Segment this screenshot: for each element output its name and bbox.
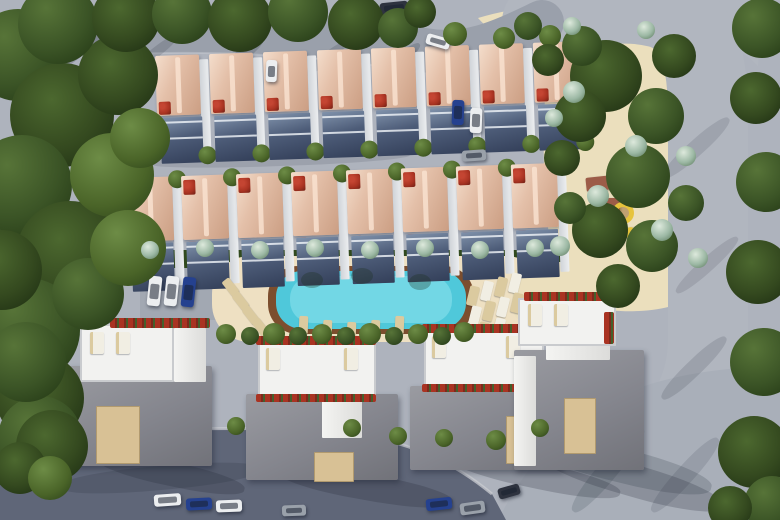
roof-ridge	[283, 54, 290, 109]
tree	[227, 417, 245, 435]
roof-ridge	[477, 168, 485, 227]
ornamental-tree	[526, 239, 544, 257]
parked-car	[462, 149, 487, 162]
terrace-rail	[323, 131, 365, 134]
car-windshield	[166, 283, 177, 299]
tree	[216, 324, 236, 344]
flower-planter	[213, 100, 225, 113]
flower-planter	[110, 318, 210, 328]
sun-lounger	[266, 348, 280, 370]
sun-lounger	[528, 304, 542, 326]
roof-ridge	[532, 166, 540, 225]
villa-deck	[314, 452, 354, 482]
tree	[433, 327, 451, 345]
palm-shadow	[351, 268, 373, 284]
tree	[486, 430, 506, 450]
car-windshield	[430, 500, 449, 508]
terrace-rail	[485, 125, 527, 128]
tree	[596, 264, 640, 308]
car-windshield	[472, 114, 481, 127]
terrace-rail	[376, 113, 418, 116]
flower-planter	[374, 94, 386, 107]
parked-car	[452, 100, 465, 125]
parked-car	[154, 493, 182, 507]
ornamental-tree	[676, 146, 696, 166]
ornamental-tree	[637, 21, 655, 39]
flower-planter	[293, 176, 306, 191]
car-windshield	[220, 503, 238, 510]
courtyard	[376, 109, 420, 156]
ornamental-tree	[587, 185, 609, 207]
roof-ridge	[312, 174, 320, 233]
tree	[652, 34, 696, 78]
roof-ridge	[367, 172, 375, 231]
ornamental-tree	[361, 241, 379, 259]
ornamental-tree	[251, 241, 269, 259]
ornamental-tree	[306, 239, 324, 257]
roof-ridge	[445, 48, 452, 103]
ornamental-tree	[550, 236, 570, 256]
ornamental-tree	[141, 241, 159, 259]
ornamental-tree	[688, 248, 708, 268]
terrace-rail	[484, 109, 526, 112]
flower-planter	[403, 172, 416, 187]
parked-car	[470, 108, 483, 133]
ornamental-tree	[563, 17, 581, 35]
tree	[312, 324, 332, 344]
tree	[241, 327, 259, 345]
townhouse-unit	[317, 48, 375, 168]
flower-planter	[422, 384, 522, 392]
car-windshield	[183, 284, 194, 300]
tree	[263, 323, 285, 345]
tree	[408, 324, 428, 344]
terrace-rail	[322, 115, 364, 118]
ornamental-tree	[196, 239, 214, 257]
terrace-rail	[269, 133, 311, 136]
villa-structure	[514, 356, 536, 466]
sun-lounger	[554, 304, 568, 326]
ornamental-tree	[563, 81, 585, 103]
roof-ridge	[337, 52, 344, 107]
townhouse-unit	[479, 43, 537, 163]
terrace-rail	[461, 235, 503, 238]
car-windshield	[149, 283, 160, 299]
flower-planter	[604, 312, 614, 344]
terrace-rail	[516, 233, 558, 236]
ornamental-tree	[545, 109, 563, 127]
townhouse-unit	[401, 166, 460, 286]
tree	[337, 327, 355, 345]
ornamental-tree	[651, 219, 673, 241]
townhouse-unit	[511, 163, 570, 283]
car-windshield	[454, 106, 463, 119]
tree	[443, 22, 467, 46]
terrace-rail	[187, 260, 229, 263]
townhouse-unit	[181, 174, 240, 294]
flower-planter	[183, 180, 196, 195]
flower-planter	[238, 178, 251, 193]
flower-planter	[513, 168, 526, 183]
palm-shadow	[409, 274, 431, 290]
roof-ridge	[229, 56, 236, 111]
sun-lounger	[116, 332, 130, 354]
flower-planter	[458, 170, 471, 185]
tree	[343, 419, 361, 437]
parked-car	[186, 497, 213, 510]
townhouse-unit	[236, 172, 295, 292]
flower-planter	[348, 174, 361, 189]
tree	[389, 427, 407, 445]
courtyard	[268, 113, 312, 160]
tree	[514, 12, 542, 40]
terrace-rail	[297, 257, 339, 260]
flower-planter	[159, 101, 171, 114]
car-windshield	[158, 496, 177, 503]
flower-planter	[482, 90, 494, 103]
tree	[730, 72, 780, 124]
tree	[532, 44, 564, 76]
courtyard	[484, 105, 528, 152]
tree	[668, 185, 704, 221]
flower-planter	[321, 96, 333, 109]
townhouse-row-2	[126, 163, 570, 296]
tree	[28, 456, 72, 500]
townhouse-row-1	[155, 41, 591, 174]
parked-car	[282, 505, 306, 517]
tree	[493, 27, 515, 49]
courtyard	[322, 111, 366, 158]
terrace-rail	[214, 119, 256, 122]
roof-ridge	[422, 170, 430, 229]
tree	[385, 327, 403, 345]
villa-deck	[564, 398, 596, 454]
sun-lounger	[344, 348, 358, 370]
townhouse-unit	[209, 52, 267, 172]
tree	[289, 327, 307, 345]
townhouse-unit	[371, 47, 429, 167]
ornamental-tree	[471, 241, 489, 259]
tree	[531, 419, 549, 437]
tree	[359, 323, 381, 345]
flower-planter	[536, 88, 548, 101]
palm-shadow	[301, 272, 323, 288]
car-windshield	[286, 507, 303, 513]
tree	[435, 429, 453, 447]
villa-deck	[96, 406, 140, 464]
townhouse-unit	[456, 165, 515, 285]
terrace-rail	[268, 117, 310, 120]
roof-ridge	[391, 50, 398, 105]
ornamental-tree	[416, 239, 434, 257]
courtyard	[214, 115, 258, 162]
parked-car	[216, 500, 242, 513]
townhouse-unit	[291, 170, 350, 290]
tree	[544, 140, 580, 176]
car-windshield	[267, 65, 275, 76]
roof-ridge	[175, 58, 182, 113]
car-windshield	[501, 487, 517, 497]
tree	[454, 322, 474, 342]
terrace-rail	[377, 129, 419, 132]
tree	[554, 192, 586, 224]
roof-ridge	[202, 178, 210, 237]
terrace-rail	[242, 259, 284, 262]
roof-ridge	[257, 176, 265, 235]
flower-planter	[256, 394, 376, 402]
aerial-complex-render	[0, 0, 780, 520]
villa-structure	[174, 328, 206, 382]
car-windshield	[190, 501, 208, 508]
roof-ridge	[499, 46, 506, 101]
car-windshield	[463, 504, 481, 512]
sun-lounger	[90, 332, 104, 354]
terrace-rail	[215, 134, 257, 137]
tree	[110, 108, 170, 168]
ornamental-tree	[625, 135, 647, 157]
parked-car	[266, 60, 278, 82]
flower-planter	[428, 92, 440, 105]
flower-planter	[267, 98, 279, 111]
terrace-rail	[431, 127, 473, 130]
car-windshield	[465, 152, 482, 159]
